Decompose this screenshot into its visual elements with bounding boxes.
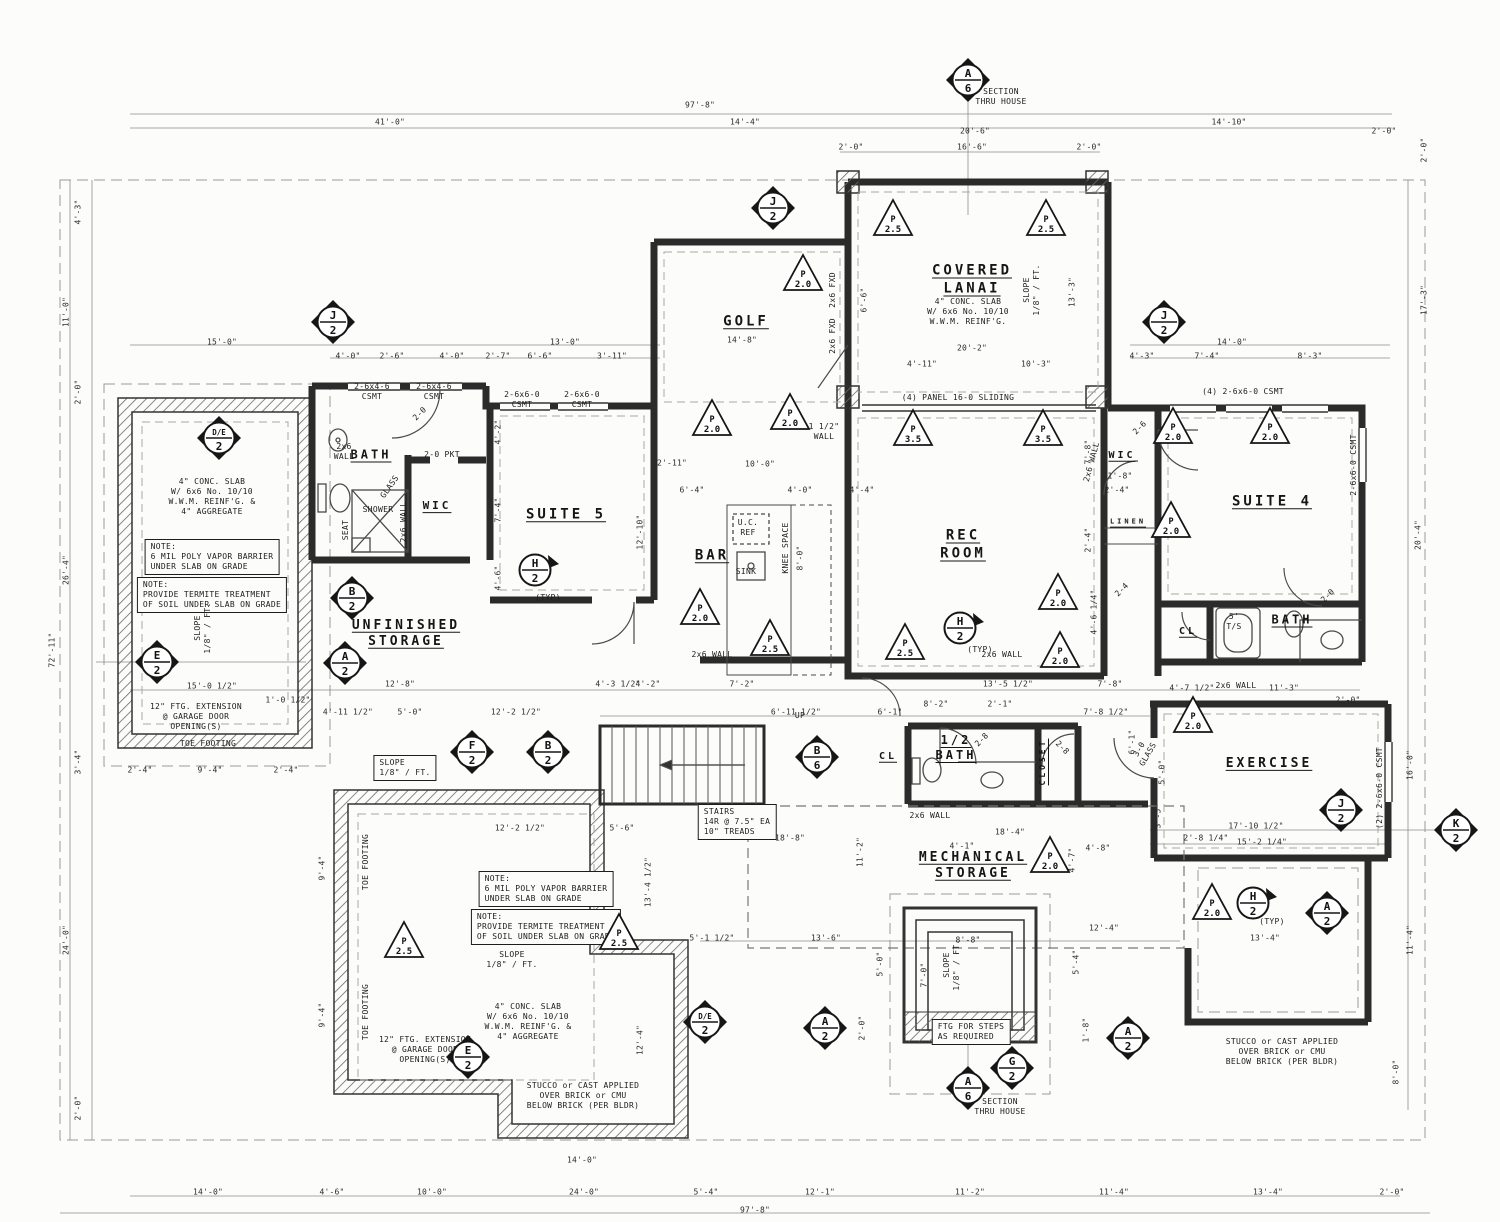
svg-text:2: 2 <box>770 210 777 223</box>
svg-text:D/E: D/E <box>212 428 226 437</box>
section-marker: B 2 <box>329 575 375 621</box>
dim-label: 7'-2" <box>729 680 754 689</box>
dim-label: 15'-0" <box>207 338 237 347</box>
svg-text:2.0: 2.0 <box>1185 722 1201 732</box>
svg-text:P: P <box>1267 423 1272 433</box>
note-text: 2-6x6-0 CSMT <box>504 390 540 410</box>
svg-text:A: A <box>822 1015 829 1028</box>
note-text: TOE FOOTING <box>361 984 371 1040</box>
dim-label: 13'-6" <box>811 934 841 943</box>
svg-text:2: 2 <box>469 754 476 767</box>
dim-label: 6'-1" <box>877 708 902 717</box>
section-marker: D/E 2 <box>682 999 728 1045</box>
svg-text:2.0: 2.0 <box>1052 657 1068 667</box>
section-marker: J 2 <box>1318 787 1364 833</box>
dim-label: 6'-11 1/2" <box>771 708 821 717</box>
svg-text:2: 2 <box>1161 324 1168 337</box>
window-marker: P 2.0 <box>1190 882 1234 922</box>
svg-text:2.5: 2.5 <box>1038 225 1054 235</box>
dim-label: 4'-0" <box>439 352 464 361</box>
window-marker: P 2.0 <box>1036 572 1080 612</box>
section-marker: G 2 <box>989 1045 1035 1091</box>
section-marker: A 2 <box>1304 890 1350 936</box>
section-marker: J 2 <box>310 299 356 345</box>
section-marker: E 2 <box>445 1034 491 1080</box>
section-marker: F 2 <box>449 729 495 775</box>
svg-text:A: A <box>965 1075 972 1088</box>
note-text: 2-6x6-0 CSMT <box>1349 434 1359 495</box>
dim-label: 2'-4" <box>1084 527 1093 552</box>
dim-label: 12'-4" <box>1089 924 1119 933</box>
dim-label: 2'-0" <box>838 143 863 152</box>
dim-label: 2'-4" <box>1104 486 1129 495</box>
dim-label: 13'-4" <box>1253 1188 1283 1197</box>
room-label: LINEN <box>1110 518 1146 527</box>
svg-text:2.5: 2.5 <box>897 649 913 659</box>
section-marker: A 2 <box>802 1005 848 1051</box>
svg-text:2.0: 2.0 <box>782 419 798 429</box>
dim-label: 8'-8" <box>955 936 980 945</box>
svg-text:P: P <box>1168 517 1173 527</box>
svg-text:B: B <box>545 739 552 752</box>
dim-label: 4'-11 1/2" <box>323 708 373 717</box>
dim-label: 3'-11" <box>597 352 627 361</box>
dim-label: 9'-4" <box>318 855 327 880</box>
dim-label: 2'-0" <box>1420 137 1429 162</box>
dim-label: 4'-3 1/2" <box>595 680 640 689</box>
window-marker: P 2.0 <box>1149 500 1193 540</box>
dim-label: 8'-3" <box>1297 352 1322 361</box>
room-label: 1/2 BATH <box>936 733 977 763</box>
svg-text:A: A <box>342 650 349 663</box>
dim-label: 2'-1" <box>987 700 1012 709</box>
dim-label: 15'-0 1/2" <box>187 682 237 691</box>
note-text: TOE FOOTING <box>361 834 371 890</box>
note-text: 2-0 <box>411 405 429 423</box>
dim-label: 97'-8" <box>740 1206 770 1215</box>
dim-label: 2'-8 1/4" <box>1183 834 1228 843</box>
note-text: SLOPE 1/8" / FT. <box>942 939 962 990</box>
svg-text:2.5: 2.5 <box>762 645 778 655</box>
dim-label: 16'-6" <box>957 143 987 152</box>
svg-text:G: G <box>1009 1055 1016 1068</box>
svg-text:P: P <box>1040 425 1045 435</box>
svg-text:K: K <box>1453 817 1460 830</box>
svg-text:2.5: 2.5 <box>611 939 627 949</box>
dim-label: 2'-4" <box>273 766 298 775</box>
window-marker: P 2.5 <box>883 622 927 662</box>
dim-label: 6'-1" <box>1128 729 1137 754</box>
note-text: (2) 2-6x6-0 CSMT <box>1375 747 1385 829</box>
svg-text:F: F <box>469 739 476 752</box>
note-text: 2-6 <box>1131 419 1149 437</box>
dim-label: 4'-11" <box>907 360 937 369</box>
dim-label: 97'-8" <box>685 101 715 110</box>
dim-label: 13'-4" <box>1250 934 1280 943</box>
dim-label: 4'-2" <box>494 419 503 444</box>
note-text: SLOPE 1/8" / FT. <box>373 755 436 781</box>
dim-label: 13'-0" <box>550 338 580 347</box>
note-text: 2-8 <box>1053 739 1071 757</box>
section-marker: E 2 <box>134 639 180 685</box>
svg-text:2: 2 <box>465 1059 472 1072</box>
svg-text:2.0: 2.0 <box>704 425 720 435</box>
dim-label: 14'-8" <box>727 336 757 345</box>
dim-label: 4'-1" <box>949 842 974 851</box>
note-text: FTG FOR STEPS AS REQUIRED <box>932 1019 1011 1045</box>
dim-label: 18'-4" <box>995 828 1025 837</box>
note-text: 2x6 WALL <box>1216 681 1257 691</box>
dim-label: 7'-8" <box>1084 439 1093 464</box>
dim-label: 7'-0" <box>920 962 929 987</box>
dim-label: 24'-0" <box>62 925 71 955</box>
note-text: 4" CONC. SLAB W/ 6x6 No. 10/10 W.W.M. RE… <box>169 477 256 517</box>
dim-label: 5'-0" <box>397 708 422 717</box>
dim-label: 5'-1 1/2" <box>689 934 734 943</box>
svg-text:6: 6 <box>965 1090 972 1103</box>
note-text: 1 1/2" WALL <box>809 422 840 442</box>
dim-label: 2'-6" <box>379 352 404 361</box>
section-marker: D/E 2 <box>196 415 242 461</box>
room-label: SUITE 4 <box>1232 493 1312 511</box>
dim-label: 11'-2" <box>955 1188 985 1197</box>
note-text: 2x6 WALL <box>910 811 951 821</box>
dim-label: 8'-2" <box>923 700 948 709</box>
dim-label: 7'-4" <box>1194 352 1219 361</box>
svg-text:2.0: 2.0 <box>1204 909 1220 919</box>
dim-label: 20'-2" <box>957 344 987 353</box>
window-marker: P 2.5 <box>597 912 641 952</box>
note-text: 2x6 FXD <box>828 318 838 354</box>
note-text: GLASS <box>379 474 402 501</box>
note-text: NOTE: 6 MIL POLY VAPOR BARRIER UNDER SLA… <box>145 539 280 575</box>
dim-label: 12'-2 1/2" <box>491 708 541 717</box>
note-text: STUCCO or CAST APPLIED OVER BRICK or CMU… <box>1226 1037 1339 1067</box>
window-marker: P 2.0 <box>1171 695 1215 735</box>
section-marker: J 2 <box>750 185 796 231</box>
svg-text:2.0: 2.0 <box>1050 599 1066 609</box>
section-marker: A 2 <box>322 640 368 686</box>
room-label: MECHANICAL STORAGE <box>919 850 1027 883</box>
dim-label: 2'-0" <box>1076 143 1101 152</box>
section-marker: B 6 <box>794 734 840 780</box>
dim-label: 11'-3" <box>1269 684 1299 693</box>
svg-text:2: 2 <box>545 754 552 767</box>
dim-label: 7'-8" <box>1097 680 1122 689</box>
annotation-overlay: GOLFCOVERED LANAIBATHWICSUITE 5BARREC RO… <box>0 0 1500 1222</box>
svg-text:2.5: 2.5 <box>396 947 412 957</box>
dim-label: 4'-0" <box>335 352 360 361</box>
note-text: SLOPE 1/8" / FT. <box>1022 264 1042 315</box>
dim-label: 1'-0 1/2" <box>265 696 310 705</box>
window-marker: P 2.5 <box>748 618 792 658</box>
dim-label: 11'-2" <box>856 837 865 867</box>
window-marker: P 2.0 <box>690 398 734 438</box>
svg-text:P: P <box>1190 712 1195 722</box>
svg-text:E: E <box>154 649 161 662</box>
svg-text:P: P <box>1209 899 1214 909</box>
svg-text:P: P <box>401 937 406 947</box>
room-label: COVERED LANAI <box>932 263 1012 298</box>
window-marker: P 3.5 <box>1021 408 1065 448</box>
note-text: KNEE SPACE <box>781 522 791 573</box>
svg-text:J: J <box>1338 797 1345 810</box>
section-marker: A 2 <box>1105 1015 1151 1061</box>
note-text: 2-0 <box>1319 587 1337 605</box>
dim-label: 72'-11" <box>48 632 57 667</box>
dim-label: 12'-4" <box>636 1025 645 1055</box>
dim-label: 18'-8" <box>775 834 805 843</box>
dim-label: 24'-0" <box>569 1188 599 1197</box>
svg-text:J: J <box>770 195 777 208</box>
svg-text:A: A <box>1324 900 1331 913</box>
svg-text:6: 6 <box>965 82 972 95</box>
dim-label: 11'-0" <box>62 297 71 327</box>
section-marker: J 2 <box>1141 299 1187 345</box>
dim-label: 5'-6" <box>609 824 634 833</box>
room-label: BATH <box>1272 613 1313 628</box>
window-marker: P 2.0 <box>678 587 722 627</box>
svg-text:2: 2 <box>1250 905 1257 918</box>
section-marker: A 6 <box>945 1065 991 1111</box>
dim-label: 3'-5" <box>1154 803 1163 828</box>
svg-text:E: E <box>465 1044 472 1057</box>
section-marker: B 2 <box>525 729 571 775</box>
svg-text:2: 2 <box>1324 915 1331 928</box>
svg-text:3.5: 3.5 <box>1035 435 1051 445</box>
dim-label: 13'-3" <box>1068 277 1077 307</box>
dim-label: 17'-10 1/2" <box>1228 822 1283 831</box>
svg-text:H: H <box>957 615 964 628</box>
dim-label: 7'-4" <box>494 497 503 522</box>
dim-label: 9'-4" <box>197 766 222 775</box>
dim-label: 2'-4" <box>127 766 152 775</box>
svg-text:6: 6 <box>814 759 821 772</box>
section-marker: A 6 <box>945 57 991 103</box>
dim-label: 6'-4" <box>679 486 704 495</box>
note-text: 2x6 WALL <box>399 502 409 543</box>
svg-text:2.0: 2.0 <box>1165 433 1181 443</box>
dim-label: 4'-6" <box>494 565 503 590</box>
svg-text:2: 2 <box>1453 832 1460 845</box>
svg-text:2: 2 <box>216 440 223 453</box>
room-label: BAR <box>695 547 729 565</box>
dim-label: 20'-6" <box>960 127 990 136</box>
svg-text:H: H <box>1250 890 1257 903</box>
room-label: SUITE 5 <box>526 506 606 524</box>
window-marker: P 2.0 <box>1248 406 1292 446</box>
svg-text:B: B <box>814 744 821 757</box>
svg-text:2: 2 <box>957 630 964 643</box>
dim-label: 2'-0" <box>1379 1188 1404 1197</box>
detail-marker: H 2 <box>939 607 985 649</box>
svg-text:P: P <box>616 929 621 939</box>
room-label: CL <box>1179 626 1197 639</box>
dim-label: 6'-6" <box>860 287 869 312</box>
svg-text:2: 2 <box>154 664 161 677</box>
svg-text:2.0: 2.0 <box>1163 527 1179 537</box>
note-text: NOTE: 6 MIL POLY VAPOR BARRIER UNDER SLA… <box>479 871 614 907</box>
dim-label: 2'-0" <box>74 379 83 404</box>
note-text: 2x6 WALL <box>692 650 733 660</box>
note-text: 2x6 FXD <box>828 272 838 308</box>
svg-text:P: P <box>709 415 714 425</box>
dim-label: 20'-4" <box>1414 520 1423 550</box>
svg-text:2.0: 2.0 <box>1262 433 1278 443</box>
dim-label: 4'-7 1/2" <box>1169 684 1214 693</box>
room-label: UNFINISHED STORAGE <box>352 618 460 651</box>
svg-text:J: J <box>1161 309 1168 322</box>
svg-text:P: P <box>787 409 792 419</box>
svg-text:P: P <box>697 604 702 614</box>
note-text: 12" FTG. EXTENSION @ GARAGE DOOR OPENING… <box>150 702 242 732</box>
note-text: TOE FOOTING <box>180 739 236 749</box>
note-text: SINK <box>736 567 756 577</box>
dim-label: 2'-0" <box>1371 127 1396 136</box>
svg-text:P: P <box>800 270 805 280</box>
note-text: (4) 2-6x6-0 CSMT <box>1202 387 1284 397</box>
dim-label: 2'-0" <box>858 1015 867 1040</box>
note-text: 2-6x4-6 CSMT <box>354 382 390 402</box>
detail-marker: H 2 <box>1232 882 1278 924</box>
window-marker: P 2.5 <box>382 920 426 960</box>
svg-text:2.0: 2.0 <box>692 614 708 624</box>
window-marker: P 2.0 <box>1151 406 1195 446</box>
note-text: 5' T/S <box>1226 612 1241 632</box>
svg-text:P: P <box>767 635 772 645</box>
note-text: 4" CONC. SLAB W/ 6x6 No. 10/10 W.W.M. RE… <box>927 297 1009 327</box>
note-text: SLOPE 1/8" / FT. <box>193 602 213 653</box>
dim-label: 1'-8" <box>1107 472 1132 481</box>
note-text: 2-0 PKT <box>424 450 460 460</box>
svg-text:P: P <box>902 639 907 649</box>
floorplan-sheet: GOLFCOVERED LANAIBATHWICSUITE 5BARREC RO… <box>0 0 1500 1222</box>
svg-text:B: B <box>349 585 356 598</box>
note-text: SLOPE 1/8" / FT. <box>486 950 537 970</box>
svg-text:2: 2 <box>1009 1070 1016 1083</box>
dim-label: 14'-0" <box>567 1156 597 1165</box>
svg-text:P: P <box>1047 852 1052 862</box>
svg-text:P: P <box>910 425 915 435</box>
room-label: GOLF <box>723 313 769 331</box>
room-label: CL <box>879 751 897 764</box>
dim-label: 10'-0" <box>417 1188 447 1197</box>
dim-label: 13'-5 1/2" <box>983 680 1033 689</box>
room-label: WIC <box>423 499 452 513</box>
dim-label: 4'-3" <box>74 199 83 224</box>
window-marker: P 2.0 <box>768 392 812 432</box>
note-text: SHOWER <box>363 505 394 515</box>
dim-label: 16'-0" <box>1406 750 1415 780</box>
dim-label: 17'-3" <box>1420 285 1429 315</box>
svg-text:P: P <box>890 215 895 225</box>
note-text: 2-6x6-0 CSMT <box>564 390 600 410</box>
note-text: 2x6 WALL <box>334 442 354 462</box>
window-marker: P 2.5 <box>1024 198 1068 238</box>
dim-label: 4'-6 1/4" <box>1090 589 1099 634</box>
svg-text:A: A <box>965 67 972 80</box>
dim-label: 14'-0" <box>1217 338 1247 347</box>
dim-label: 5'-0" <box>876 951 885 976</box>
dim-label: 2'-0" <box>1335 696 1360 705</box>
room-label: REC ROOM <box>940 528 986 563</box>
svg-text:D/E: D/E <box>698 1012 712 1021</box>
note-text: U.C. REF <box>738 518 758 538</box>
room-label: BATH <box>351 448 392 463</box>
section-marker: K 2 <box>1433 807 1479 853</box>
room-label: WIC <box>1108 450 1135 463</box>
svg-text:H: H <box>532 557 539 570</box>
note-text: 4" CONC. SLAB W/ 6x6 No. 10/10 W.W.M. RE… <box>485 1002 572 1042</box>
dim-label: 9'-4" <box>318 1002 327 1027</box>
dim-label: 12'-8" <box>385 680 415 689</box>
svg-text:A: A <box>1125 1025 1132 1038</box>
note-text: 2-6x4-6 CSMT <box>416 382 452 402</box>
svg-text:2.0: 2.0 <box>1042 862 1058 872</box>
dim-label: 1'-8" <box>1082 1017 1091 1042</box>
svg-text:2.0: 2.0 <box>795 280 811 290</box>
svg-text:P: P <box>1055 589 1060 599</box>
note-text: SEAT <box>341 520 351 540</box>
dim-label: 5'-4" <box>693 1188 718 1197</box>
dim-label: 4'-6" <box>319 1188 344 1197</box>
dim-label: 41'-0" <box>375 118 405 127</box>
dim-label: 6'-6" <box>527 352 552 361</box>
svg-text:2.5: 2.5 <box>885 225 901 235</box>
svg-text:2: 2 <box>349 600 356 613</box>
dim-label: 13'-4 1/2" <box>644 857 653 907</box>
dim-label: 4'-2" <box>635 680 660 689</box>
note-text: STUCCO or CAST APPLIED OVER BRICK or CMU… <box>527 1081 640 1111</box>
note-text: (TYP) <box>535 593 561 603</box>
dim-label: 15'-2 1/4" <box>1237 838 1287 847</box>
note-text: STAIRS 14R @ 7.5" EA 10" TREADS <box>698 804 777 840</box>
dim-label: 5'-4" <box>1072 949 1081 974</box>
room-label: CLOSET <box>1038 739 1048 786</box>
window-marker: P 2.0 <box>1028 835 1072 875</box>
dim-label: 8'-0" <box>1392 1059 1401 1084</box>
dim-label: 4'-0" <box>787 486 812 495</box>
svg-text:P: P <box>1170 423 1175 433</box>
svg-text:2: 2 <box>330 324 337 337</box>
svg-text:2: 2 <box>532 572 539 585</box>
dim-label: 2'-7" <box>485 352 510 361</box>
svg-text:P: P <box>1043 215 1048 225</box>
dim-label: 7'-8 1/2" <box>1083 708 1128 717</box>
window-marker: P 2.0 <box>1038 630 1082 670</box>
dim-label: 4'-3" <box>1129 352 1154 361</box>
svg-text:2: 2 <box>822 1030 829 1043</box>
svg-text:2: 2 <box>1125 1040 1132 1053</box>
dim-label: 2'-0" <box>74 1095 83 1120</box>
svg-text:3.5: 3.5 <box>905 435 921 445</box>
dim-label: 26'-4" <box>62 555 71 585</box>
dim-label: 14'-0" <box>193 1188 223 1197</box>
dim-label: 14'-10" <box>1211 118 1246 127</box>
svg-text:2: 2 <box>702 1024 709 1037</box>
note-text: (4) PANEL 16-0 SLIDING <box>902 393 1015 403</box>
dim-label: 12'-10" <box>636 514 645 549</box>
svg-text:J: J <box>330 309 337 322</box>
dim-label: 14'-4" <box>730 118 760 127</box>
svg-text:P: P <box>1057 647 1062 657</box>
dim-label: 12'-2 1/2" <box>495 824 545 833</box>
dim-label: 5'-0" <box>1158 759 1167 784</box>
dim-label: 8'-0" <box>796 545 805 570</box>
note-text: 2-4 <box>1113 581 1131 599</box>
window-marker: P 3.5 <box>891 408 935 448</box>
dim-label: 4'-4" <box>849 486 874 495</box>
